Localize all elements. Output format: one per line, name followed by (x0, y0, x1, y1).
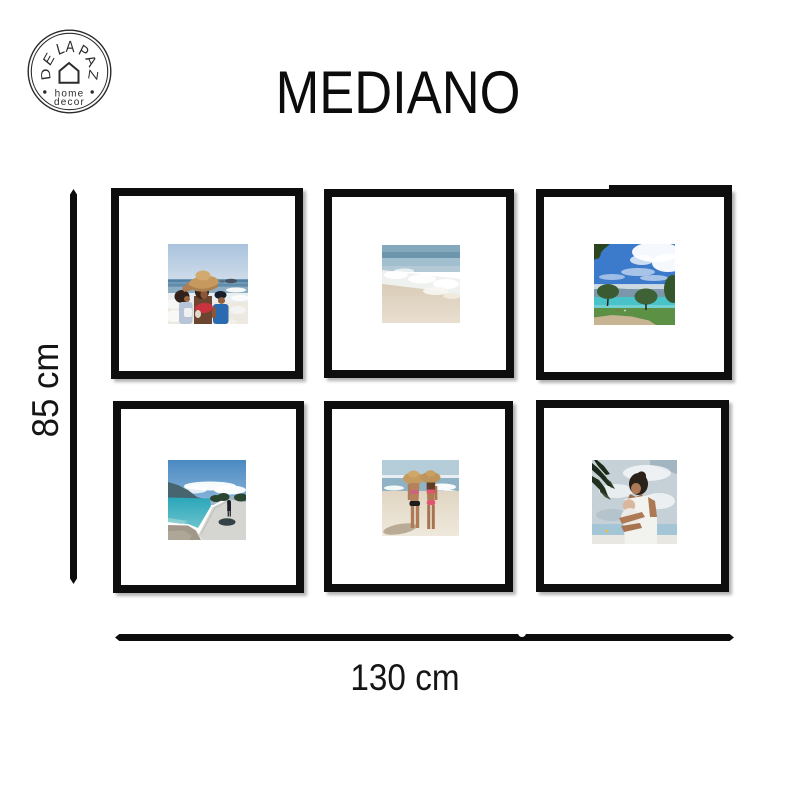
svg-text:decor: decor (54, 97, 85, 108)
svg-text:DE LA PAZ: DE LA PAZ (39, 39, 100, 82)
